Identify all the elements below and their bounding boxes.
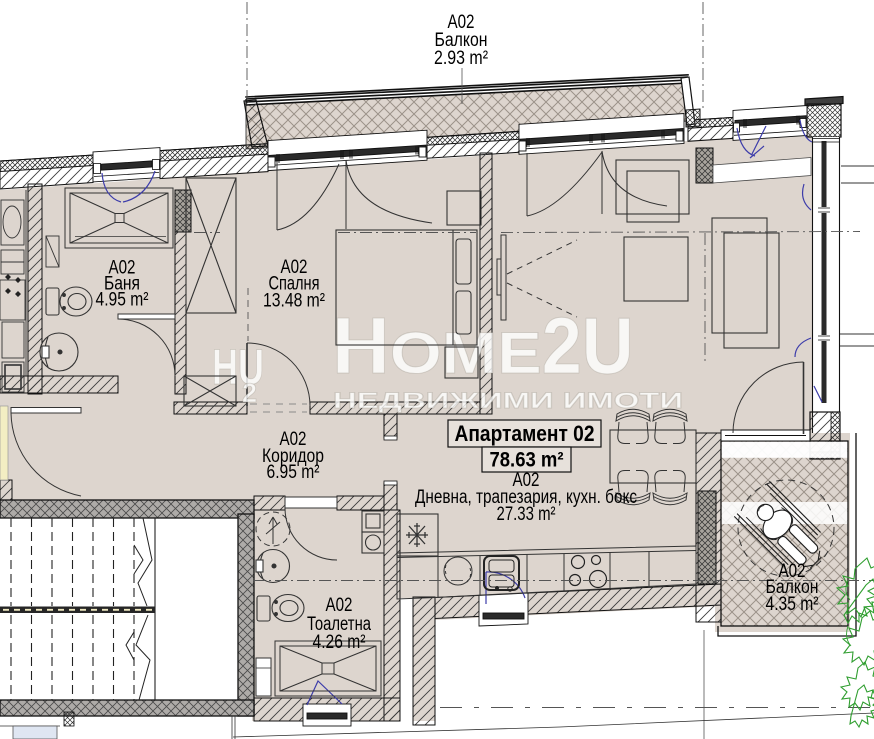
svg-text:2.93 m²: 2.93 m² [434, 48, 488, 69]
svg-text:4.35 m²: 4.35 m² [766, 594, 819, 615]
svg-text:Апартамент 02: Апартамент 02 [455, 421, 595, 446]
svg-text:4.26 m²: 4.26 m² [313, 632, 366, 653]
svg-text:78.63 m²: 78.63 m² [490, 449, 564, 472]
svg-text:2: 2 [242, 378, 257, 408]
svg-text:6.95 m²: 6.95 m² [267, 462, 320, 483]
svg-text:4.95 m²: 4.95 m² [96, 290, 149, 311]
svg-text:А02: А02 [326, 595, 353, 616]
svg-text:27.33 m²: 27.33 m² [497, 504, 556, 525]
svg-text:13.48 m²: 13.48 m² [263, 291, 325, 312]
